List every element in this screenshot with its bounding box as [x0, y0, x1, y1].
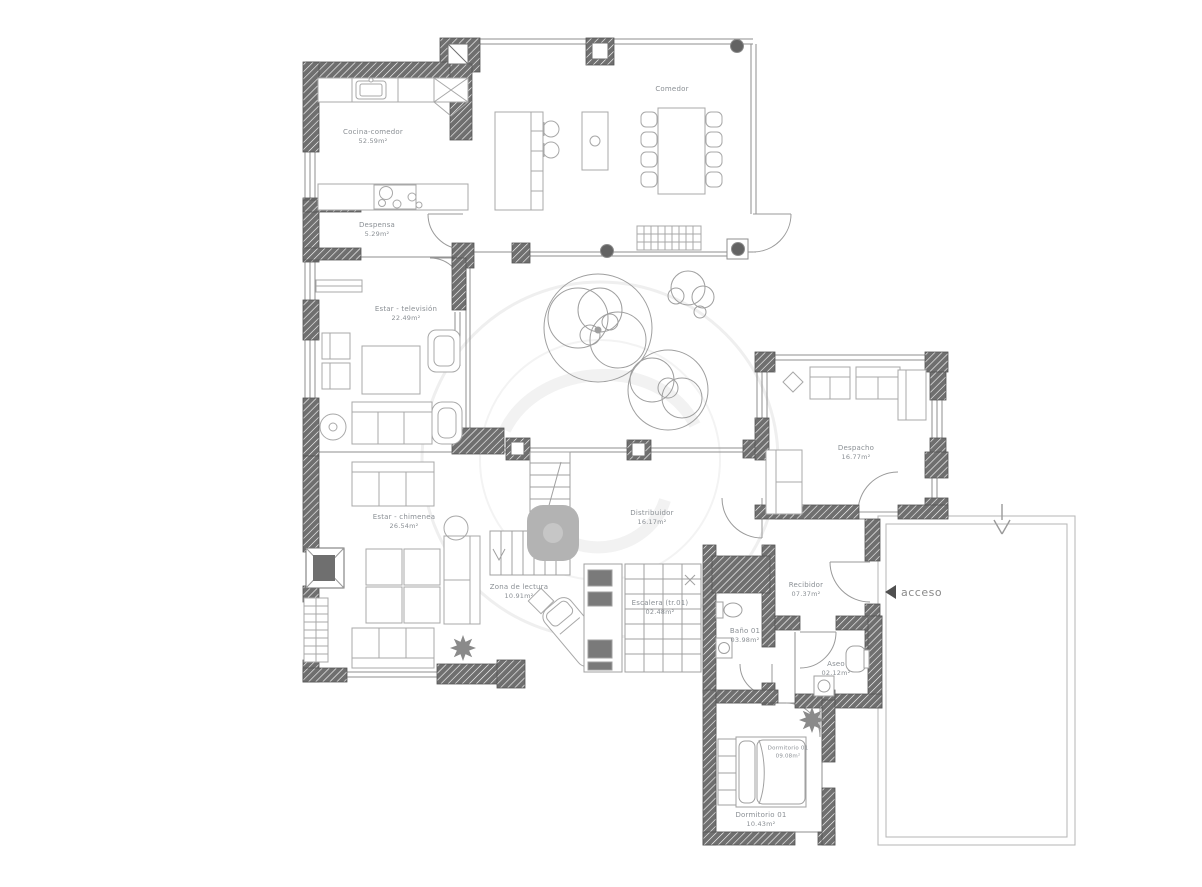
shrub-icon [668, 271, 714, 318]
bed [736, 737, 806, 807]
living-tv-furniture [316, 280, 462, 444]
shelf-unit [584, 564, 622, 672]
bar-stool [543, 142, 559, 158]
access-label: acceso [901, 586, 942, 599]
sofa [352, 402, 432, 444]
sideboard [316, 280, 362, 292]
access-arrow-icon [885, 585, 896, 599]
armchair [428, 330, 460, 372]
coffee-table [362, 346, 420, 394]
dining-table [641, 108, 722, 194]
toilet [716, 602, 742, 618]
living-fireplace-furniture [352, 462, 480, 668]
door-aseo [800, 632, 836, 668]
toilet [846, 646, 869, 672]
bathroom-fixtures [716, 602, 742, 658]
aseo-fixtures [814, 646, 869, 696]
bedroom-furniture [718, 737, 806, 807]
sink [716, 638, 732, 658]
bar-stool [543, 121, 559, 137]
sofa [444, 536, 480, 624]
sofa [810, 367, 850, 399]
door-entrada [830, 562, 870, 602]
access-label-group: acceso [885, 585, 942, 599]
office-furniture [766, 367, 926, 514]
terrace-entry-arrow-icon [994, 504, 1010, 534]
sofa [766, 450, 802, 514]
wardrobe [718, 739, 736, 805]
side-table [320, 414, 346, 440]
armchair [432, 402, 462, 444]
floor-plan: Cocina-comedor 52.59m² Comedor Despensa … [0, 0, 1202, 887]
sofa [856, 367, 900, 399]
stairs-lower [625, 564, 701, 672]
radiator-comedor [637, 226, 701, 250]
kitchen-islands [495, 112, 608, 210]
fireplace [306, 548, 344, 588]
sofa [352, 628, 434, 668]
door-comedor [753, 214, 791, 252]
sink [814, 676, 834, 696]
stair-blob [527, 505, 579, 561]
floor-plan-drawing [0, 0, 1202, 887]
desk [898, 370, 926, 420]
radiator-estar [304, 598, 328, 662]
plant-icon [445, 630, 482, 667]
columns [448, 40, 748, 457]
sofa [352, 462, 434, 506]
kitchen-counter [318, 78, 468, 210]
kitchen-sink [356, 78, 386, 99]
cooktop [374, 185, 422, 209]
terrace-outline [878, 516, 1075, 845]
door-despacho [858, 472, 898, 512]
